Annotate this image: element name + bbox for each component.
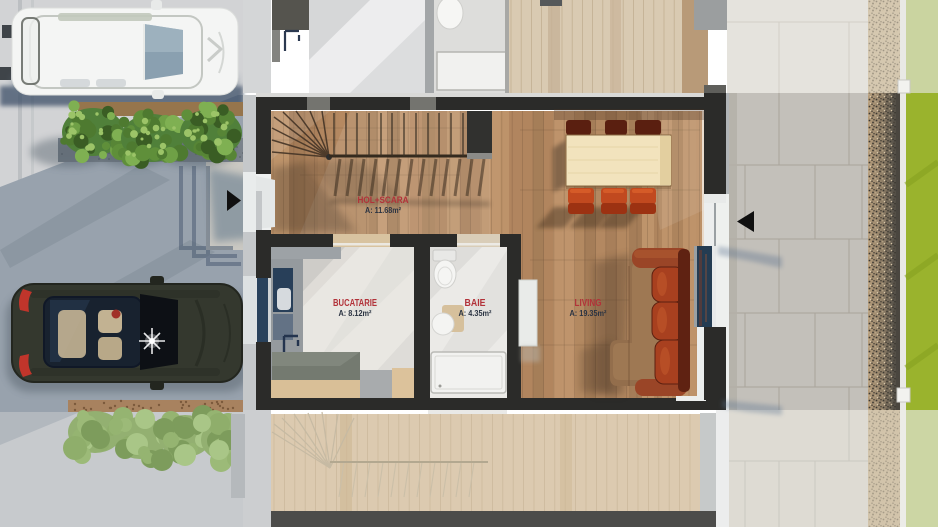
svg-text:LIVING: LIVING	[575, 298, 602, 309]
svg-text:HOL+SCARA: HOL+SCARA	[358, 195, 409, 206]
svg-text:A: 19.35m²: A: 19.35m²	[570, 309, 607, 318]
svg-text:A: 4.35m²: A: 4.35m²	[459, 309, 492, 318]
svg-text:BUCATARIE: BUCATARIE	[333, 298, 377, 309]
svg-text:BAIE: BAIE	[465, 298, 486, 309]
svg-text:A: 8.12m²: A: 8.12m²	[339, 309, 372, 318]
svg-text:A: 11.68m²: A: 11.68m²	[365, 206, 401, 215]
